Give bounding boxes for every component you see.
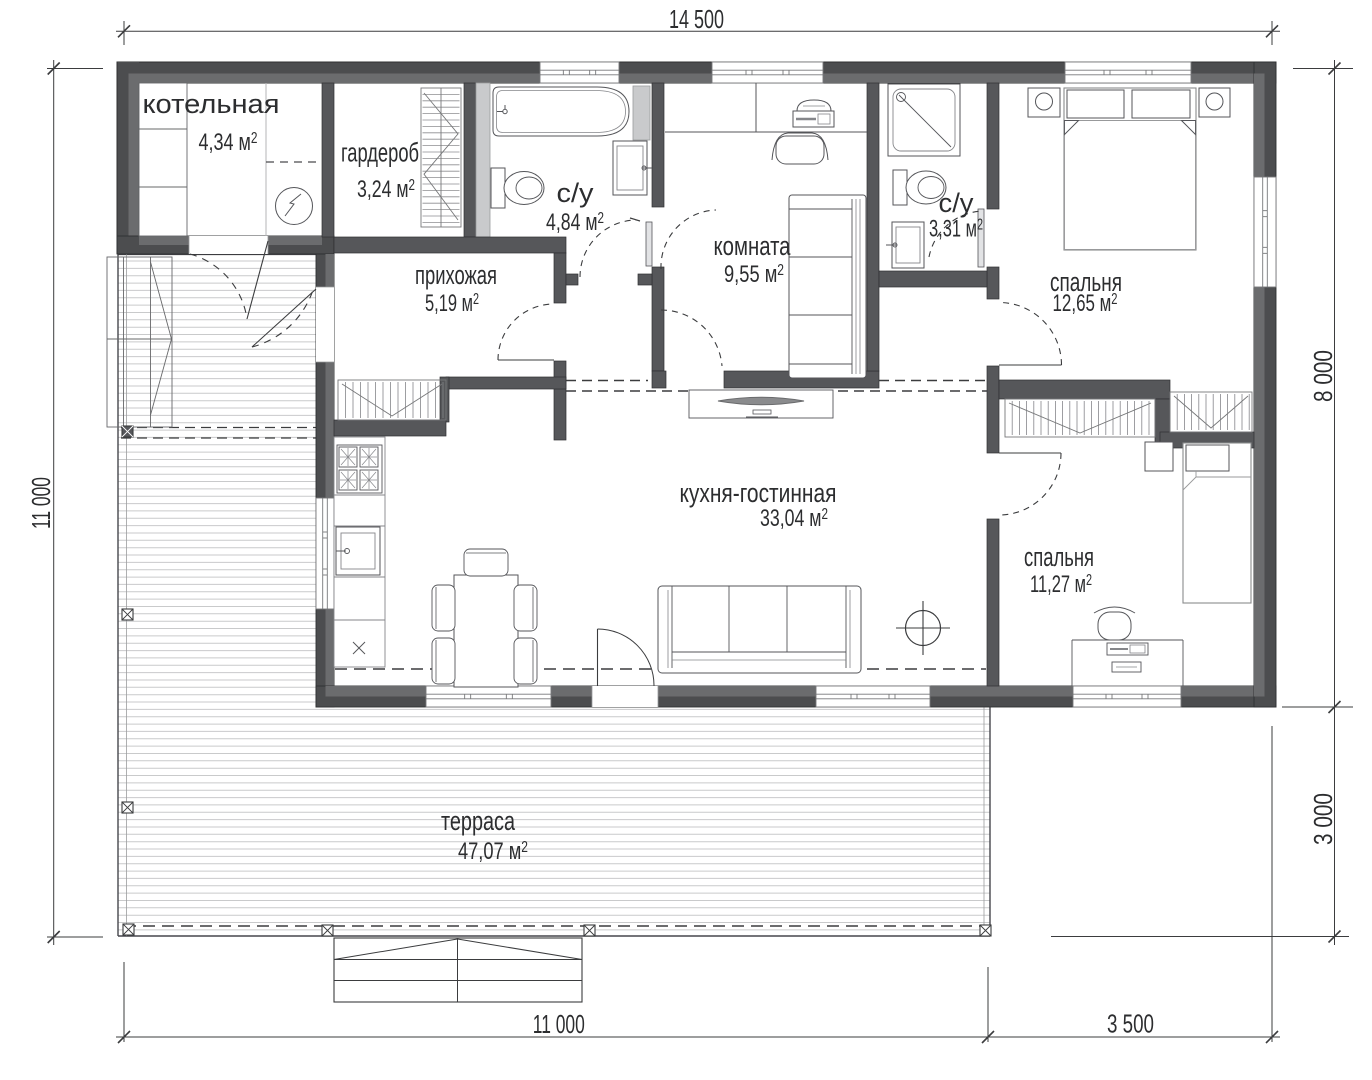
svg-text:11,27 м2: 11,27 м2 <box>1030 571 1092 598</box>
svg-text:8 000: 8 000 <box>1308 350 1338 402</box>
svg-text:12,65 м2: 12,65 м2 <box>1053 290 1118 317</box>
svg-text:прихожая: прихожая <box>415 260 497 290</box>
svg-text:гардероб: гардероб <box>341 138 419 168</box>
svg-text:спальня: спальня <box>1024 542 1094 572</box>
svg-text:3 500: 3 500 <box>1107 1009 1154 1039</box>
svg-text:с/у: с/у <box>939 188 974 218</box>
svg-text:9,55 м2: 9,55 м2 <box>724 261 784 288</box>
svg-text:33,04 м2: 33,04 м2 <box>760 505 828 532</box>
svg-text:с/у: с/у <box>557 178 595 208</box>
svg-text:4,84 м2: 4,84 м2 <box>546 209 604 236</box>
svg-text:кухня-гостинная: кухня-гостинная <box>680 478 837 508</box>
svg-text:терраса: терраса <box>441 806 516 836</box>
svg-text:комната: комната <box>714 231 792 261</box>
svg-text:11 000: 11 000 <box>26 477 56 529</box>
svg-text:5,19 м2: 5,19 м2 <box>425 290 479 317</box>
svg-text:3,24 м2: 3,24 м2 <box>357 176 415 203</box>
svg-text:котельная: котельная <box>143 89 280 119</box>
svg-text:3 000: 3 000 <box>1308 793 1338 845</box>
svg-text:47,07 м2: 47,07 м2 <box>458 838 528 865</box>
svg-text:11 000: 11 000 <box>533 1009 585 1039</box>
svg-text:3,31 м2: 3,31 м2 <box>929 216 983 243</box>
svg-text:14 500: 14 500 <box>669 4 724 34</box>
svg-text:4,34 м2: 4,34 м2 <box>199 129 258 156</box>
